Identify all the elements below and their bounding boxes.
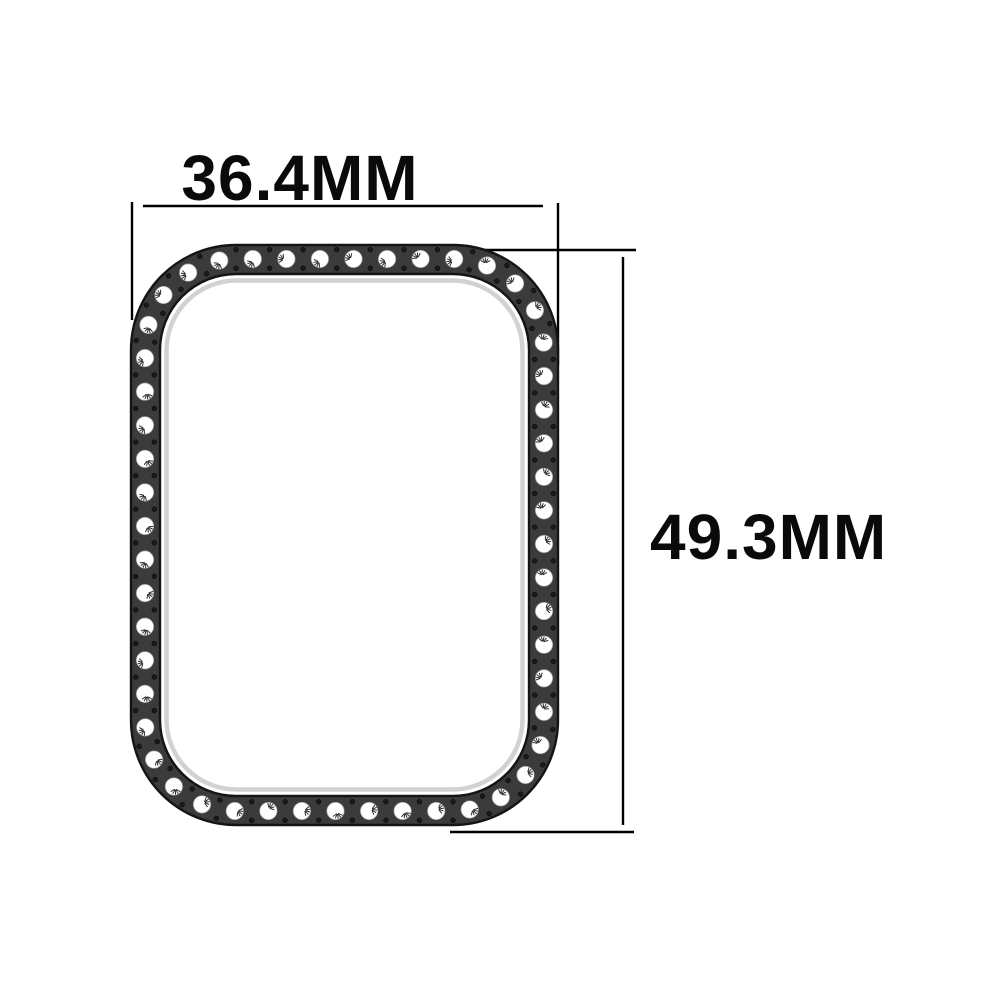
bezel-dot (532, 626, 537, 631)
bezel-dot (495, 279, 500, 284)
bezel-dot (532, 659, 537, 664)
bezel-dot (218, 798, 223, 803)
rhinestone (155, 286, 172, 303)
bezel-dot (350, 818, 355, 823)
rhinestone (244, 250, 261, 268)
bezel-dot (133, 608, 138, 613)
bezel-dot (532, 525, 537, 530)
bezel-dot (551, 491, 556, 496)
bezel-dot (133, 540, 138, 545)
bezel-dot (480, 794, 485, 799)
bezel-dot (551, 659, 556, 664)
rhinestone (137, 719, 154, 737)
bezel-dot (532, 391, 537, 396)
bezel-dot (152, 340, 157, 345)
dimension-lines (132, 202, 636, 832)
bezel-dot (532, 725, 537, 730)
bezel-dot (516, 299, 521, 304)
bezel-dot (532, 424, 537, 429)
bezel-dot (161, 311, 166, 316)
bezel-dot (152, 574, 157, 579)
bezel-dot (283, 818, 288, 823)
rhinestone (492, 789, 509, 806)
rhinestone (260, 802, 277, 820)
bezel-dot (155, 739, 160, 744)
rhinestone (535, 401, 552, 418)
bezel-dot (204, 271, 209, 276)
rhinestone (535, 435, 552, 452)
rhinestone (517, 766, 535, 783)
rhinestone (140, 316, 157, 333)
bezel-dot (152, 608, 157, 613)
bezel-dot (166, 273, 171, 278)
bezel-dot (133, 473, 138, 478)
bezel-dot (249, 818, 254, 823)
bezel-dot (152, 440, 157, 445)
bezel-dot (190, 787, 195, 792)
bezel-dot (487, 811, 492, 816)
bezel-dot (197, 254, 202, 259)
rhinestone (345, 250, 363, 267)
rhinestone (461, 801, 479, 818)
bezel-dot (551, 592, 556, 597)
rhinestone (478, 257, 495, 275)
bezel-dot (384, 818, 389, 823)
bezel-dot (451, 818, 456, 823)
bezel-dot (133, 675, 138, 680)
rhinestone (394, 802, 411, 820)
bezel-dot (551, 558, 556, 563)
rhinestone (311, 250, 328, 268)
bezel-dot (152, 373, 157, 378)
bezel-dot (267, 266, 272, 271)
rhinestone (535, 501, 552, 519)
watch-case-band (131, 245, 558, 825)
bezel-dot (417, 799, 422, 804)
bezel-dot (234, 247, 239, 252)
rhinestone (136, 685, 153, 703)
rhinestone (211, 252, 228, 269)
bezel-dot (505, 263, 510, 268)
bezel-dot (301, 247, 306, 252)
bezel-dot (152, 641, 157, 646)
bezel-dot (283, 799, 288, 804)
bezel-dot (179, 287, 184, 292)
bezel-dot (532, 693, 537, 698)
bezel-dot (234, 266, 239, 271)
rhinestone (428, 802, 446, 819)
rhinestone (179, 264, 197, 281)
bezel-dot (133, 708, 138, 713)
bezel-dot (134, 338, 139, 343)
rhinestone-layer (133, 247, 555, 822)
bezel-dot (435, 247, 440, 252)
rhinestone (378, 250, 395, 267)
bezel-dot (532, 357, 537, 362)
bezel-dot (133, 507, 138, 512)
bezel-dot (152, 540, 157, 545)
rhinestone (165, 778, 182, 796)
rhinestone (136, 517, 154, 534)
rhinestone (535, 468, 552, 486)
rhinestone (535, 670, 553, 687)
bezel-dot (133, 373, 138, 378)
bezel-dot (467, 268, 472, 273)
inner-shadow-ring (167, 281, 523, 790)
bezel-dot (402, 247, 407, 252)
rhinestone (327, 802, 344, 820)
rhinestone (193, 796, 211, 813)
bezel-dot (180, 802, 185, 807)
bezel-dot (470, 249, 475, 254)
rhinestone (136, 551, 153, 568)
rhinestone (535, 703, 552, 720)
bezel-dot (334, 247, 339, 252)
bezel-dot (551, 357, 556, 362)
bezel-dot (144, 303, 149, 308)
rhinestone (535, 636, 552, 653)
rhinestone (535, 569, 552, 587)
bezel-dot (551, 391, 556, 396)
bezel-dot (384, 799, 389, 804)
bezel-dot (540, 763, 545, 768)
bezel-dot (152, 708, 157, 713)
bezel-dot (249, 799, 254, 804)
rhinestone (145, 751, 163, 768)
height-dimension-label: 49.3MM (650, 505, 887, 569)
rhinestone (535, 367, 553, 384)
rhinestone (535, 334, 552, 351)
bezel-dot (152, 675, 157, 680)
bezel-dot (168, 766, 173, 771)
rhinestone (136, 484, 153, 502)
bezel-dot (551, 693, 556, 698)
bezel-dot (316, 799, 321, 804)
bezel-dot (152, 473, 157, 478)
bezel-dot (368, 247, 373, 252)
bezel-dot (152, 507, 157, 512)
bezel-dot (316, 818, 321, 823)
bezel-dot (524, 754, 529, 759)
bezel-dot (532, 558, 537, 563)
bezel-dot (133, 641, 138, 646)
rhinestone (532, 736, 549, 754)
width-dimension-label: 36.4MM (181, 146, 418, 210)
watch-case-diagram-canvas (0, 0, 1000, 1000)
bezel-dot (267, 247, 272, 252)
bezel-dot (531, 288, 536, 293)
bezel-dot (551, 424, 556, 429)
bezel-dot (551, 458, 556, 463)
bezel-dot (518, 792, 523, 797)
bezel-dot (133, 440, 138, 445)
rhinestone (293, 802, 310, 819)
rhinestone (136, 618, 153, 635)
rhinestone (136, 584, 154, 601)
bezel-dot (532, 491, 537, 496)
rhinestone (136, 349, 154, 366)
bezel-dot (529, 326, 534, 331)
bezel-dot (214, 816, 219, 821)
rhinestone (278, 250, 295, 267)
bezel-dot (301, 266, 306, 271)
bezel-dot (402, 266, 407, 271)
bezel-dot (152, 406, 157, 411)
rhinestone (535, 602, 553, 619)
rhinestone (526, 302, 543, 320)
bezel-dot (137, 744, 142, 749)
bezel-dot (350, 799, 355, 804)
rhinestone (412, 250, 430, 267)
bezel-dot (334, 266, 339, 271)
bezel-dot (550, 727, 555, 732)
bezel-dot (133, 574, 138, 579)
bezel-dot (551, 626, 556, 631)
bezel-dot (547, 321, 552, 326)
rhinestone (136, 652, 154, 669)
bezel-dot (551, 525, 556, 530)
rhinestone (535, 535, 552, 552)
rhinestone (445, 250, 463, 267)
rhinestone (506, 275, 524, 292)
rhinestone (136, 450, 153, 467)
product-dimension-diagram: 36.4MM 49.3MM (0, 0, 1000, 1000)
rhinestone (136, 383, 153, 401)
rhinestone (226, 802, 243, 819)
rhinestone (136, 417, 153, 435)
bezel-dot (451, 799, 456, 804)
bezel-dot (532, 592, 537, 597)
bezel-dot (133, 406, 138, 411)
bezel-dot (417, 818, 422, 823)
rhinestone (360, 802, 377, 819)
bezel-dot (435, 266, 440, 271)
bezel-dot (506, 778, 511, 783)
bezel-dot (153, 777, 158, 782)
bezel-dot (368, 266, 373, 271)
bezel-dot (532, 458, 537, 463)
